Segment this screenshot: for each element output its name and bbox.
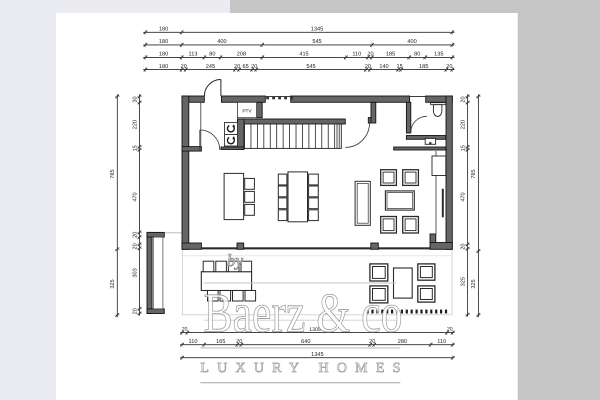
svg-text:20: 20 — [132, 308, 138, 314]
svg-text:110: 110 — [352, 52, 361, 58]
svg-text:180: 180 — [159, 39, 168, 45]
svg-text:110: 110 — [437, 339, 446, 345]
svg-text:415: 415 — [299, 52, 308, 58]
svg-text:1345: 1345 — [311, 352, 323, 358]
svg-text:140: 140 — [379, 64, 388, 70]
svg-text:20: 20 — [182, 327, 188, 333]
svg-text:110: 110 — [189, 339, 198, 345]
svg-text:180: 180 — [159, 27, 168, 33]
svg-text:20: 20 — [132, 232, 138, 238]
svg-text:470: 470 — [460, 192, 466, 201]
svg-text:80: 80 — [209, 52, 215, 58]
svg-text:180: 180 — [159, 52, 168, 58]
svg-text:180: 180 — [159, 64, 168, 70]
svg-text:113: 113 — [189, 52, 198, 58]
svg-text:185: 185 — [419, 64, 428, 70]
svg-text:80: 80 — [414, 52, 420, 58]
svg-text:15: 15 — [396, 64, 402, 70]
svg-text:20: 20 — [446, 64, 452, 70]
svg-text:PTV: PTV — [242, 109, 252, 115]
svg-text:20: 20 — [447, 327, 453, 333]
svg-text:20: 20 — [460, 96, 466, 102]
svg-text:545: 545 — [312, 39, 321, 45]
svg-text:20: 20 — [234, 64, 240, 70]
svg-text:325: 325 — [110, 279, 116, 288]
svg-text:470: 470 — [132, 192, 138, 201]
svg-text:325: 325 — [460, 277, 466, 286]
svg-text:785: 785 — [110, 169, 116, 178]
svg-text:220: 220 — [460, 120, 466, 129]
svg-text:20: 20 — [181, 64, 187, 70]
svg-text:20: 20 — [365, 64, 371, 70]
svg-text:220: 220 — [132, 120, 138, 129]
svg-text:30: 30 — [132, 96, 138, 102]
svg-text:303: 303 — [132, 268, 138, 277]
svg-text:Baerz & co: Baerz & co — [204, 283, 403, 345]
svg-text:by: by — [227, 251, 244, 270]
svg-text:545: 545 — [306, 64, 315, 70]
svg-text:1345: 1345 — [311, 27, 323, 33]
svg-text:785: 785 — [471, 169, 477, 178]
svg-text:20: 20 — [251, 64, 257, 70]
svg-text:20: 20 — [460, 243, 466, 249]
svg-text:20: 20 — [132, 243, 138, 249]
svg-text:245: 245 — [206, 64, 215, 70]
svg-text:400: 400 — [407, 39, 416, 45]
svg-text:135: 135 — [434, 52, 443, 58]
svg-text:325: 325 — [471, 279, 477, 288]
svg-text:185: 185 — [386, 52, 395, 58]
svg-text:65: 65 — [242, 64, 248, 70]
svg-text:400: 400 — [217, 39, 226, 45]
svg-text:208: 208 — [237, 52, 246, 58]
svg-text:15: 15 — [132, 145, 138, 151]
svg-text:20: 20 — [367, 52, 373, 58]
svg-text:15: 15 — [460, 145, 466, 151]
